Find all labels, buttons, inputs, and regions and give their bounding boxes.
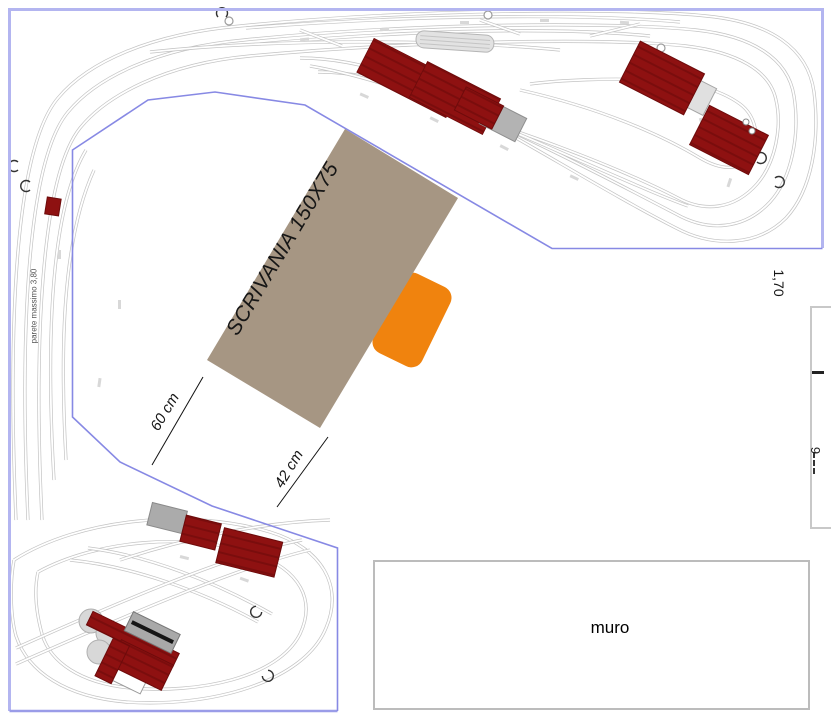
wall-label: muro [560, 618, 660, 638]
bridge-icon [415, 30, 494, 52]
edge-fragment-label: 9 [808, 447, 823, 454]
edge-dotted-mark [813, 452, 817, 474]
building-top-right-1 [619, 41, 716, 115]
edge-rect-partial [810, 306, 831, 529]
building-top-right-2 [690, 105, 769, 174]
edge-dash-mark [812, 371, 824, 374]
dim-170-label: 1,70 [771, 269, 787, 296]
left-wall-note: parete massimo 3,80 [30, 269, 39, 344]
building-left-hut [45, 197, 61, 216]
track-plan-canvas: muro 9 SCRIVANIA 150X75 60 cm 42 cm 1,70… [0, 0, 831, 718]
